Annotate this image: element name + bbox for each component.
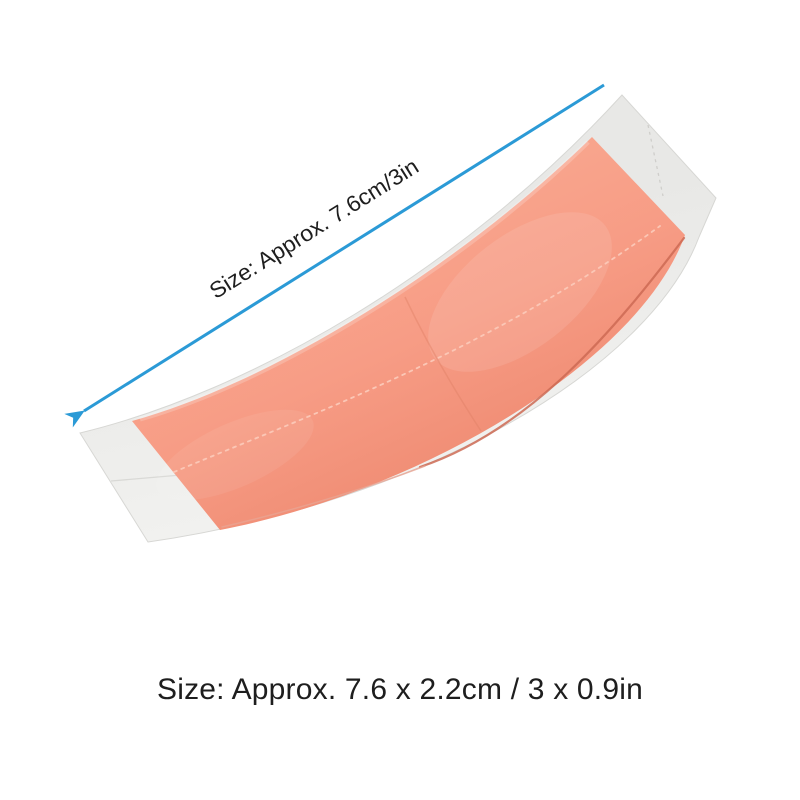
measurement-label: Size: Approx. 7.6cm/3in xyxy=(205,154,423,304)
product-image: Size: Approx. 7.6cm/3in Size: Approx. 7.… xyxy=(0,0,800,800)
size-caption: Size: Approx. 7.6 x 2.2cm / 3 x 0.9in xyxy=(0,674,800,706)
